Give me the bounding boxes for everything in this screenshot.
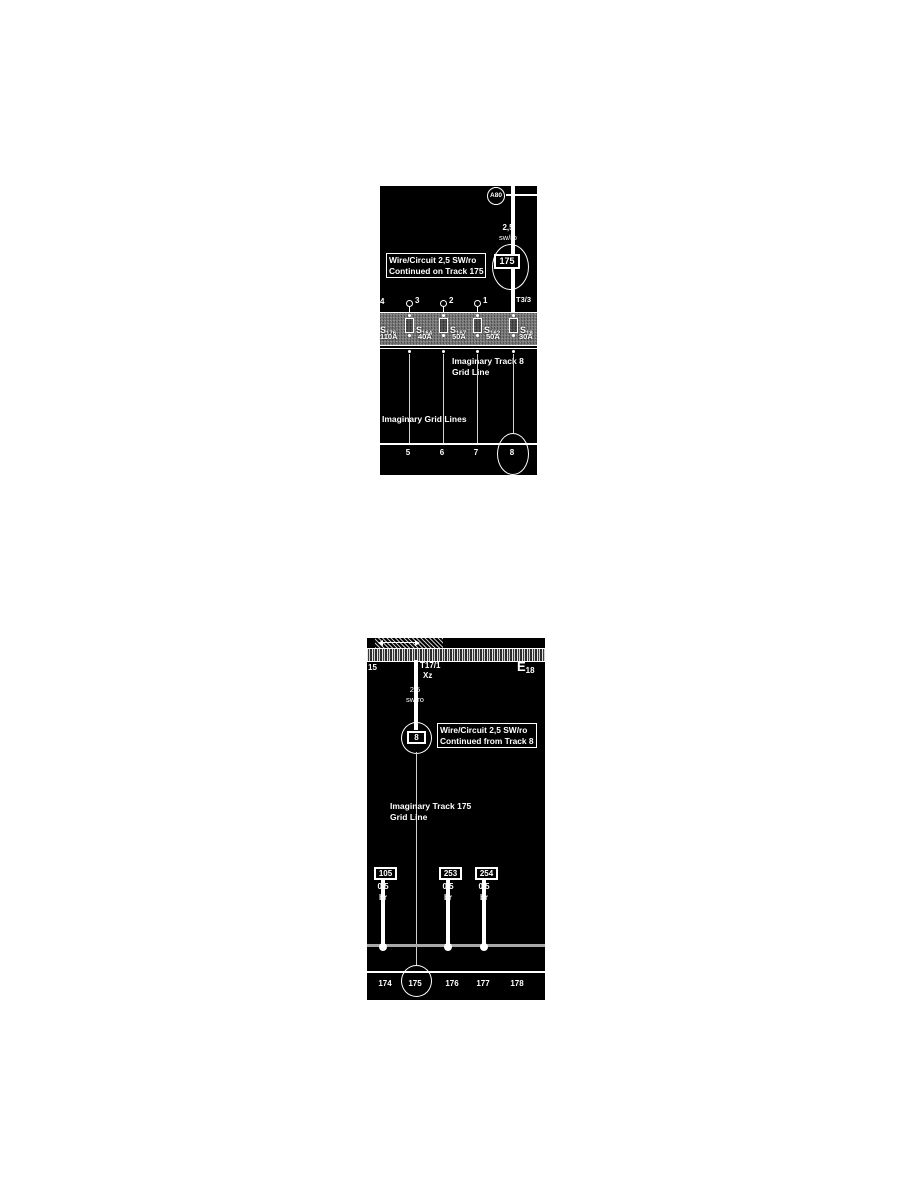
band-dot bbox=[512, 350, 515, 353]
wire-size-label: 2,5 bbox=[405, 685, 425, 694]
fuse-amp: 50A bbox=[452, 332, 466, 341]
feed-line bbox=[506, 194, 537, 196]
fuse-symbol bbox=[509, 318, 518, 333]
connector-label: T17/1 bbox=[420, 661, 440, 670]
fuse-amp: 40A bbox=[418, 332, 432, 341]
fuse-symbol bbox=[439, 318, 448, 333]
ground-dot bbox=[379, 943, 387, 951]
page: { "colors": { "page_bg": "#ffffff", "dia… bbox=[0, 0, 918, 1188]
fuse-amp: 110A bbox=[380, 332, 398, 341]
connector-sub-label: Xz bbox=[423, 671, 432, 680]
ground-dot bbox=[480, 943, 488, 951]
component-ref-sub: 18 bbox=[526, 666, 535, 675]
ground-wire bbox=[482, 878, 486, 947]
callout-line2: Continued on Track 175 bbox=[389, 266, 483, 277]
pin-label-2: 2 bbox=[449, 296, 453, 305]
component-circle: A80 bbox=[487, 187, 505, 205]
callout-line2: Continued from Track 8 bbox=[440, 736, 534, 747]
wire-number-box: 105 bbox=[374, 867, 397, 880]
track-number: 178 bbox=[505, 979, 529, 988]
band-dot bbox=[442, 350, 445, 353]
fuse-amp: 30A bbox=[519, 332, 533, 341]
track-axis-line bbox=[367, 971, 545, 973]
connector-label: T3/3 bbox=[516, 295, 531, 304]
grid-lines-note: Imaginary Grid Lines bbox=[382, 415, 467, 424]
track-number: 174 bbox=[373, 979, 397, 988]
wiring-legend-figure-track175: 15 E18 T17/1 Xz 2,5 sw/ro 8 Wire/Circuit… bbox=[367, 638, 545, 1000]
grid-line-track175 bbox=[416, 752, 417, 965]
track-number: 5 bbox=[398, 448, 418, 457]
fuse-dot bbox=[512, 334, 515, 337]
pin-label-4: 4 bbox=[380, 297, 384, 306]
fuse-amp: 50A bbox=[486, 332, 500, 341]
fuse-dot bbox=[512, 314, 515, 317]
pin-label-1: 1 bbox=[483, 296, 487, 305]
fuse-symbol bbox=[473, 318, 482, 333]
wiring-legend-figure-track8: A80 2,5 sw/ro 175 Wire/Circuit 2,5 SW/ro… bbox=[380, 186, 537, 475]
ground-bus-line bbox=[367, 944, 545, 947]
hatch-area bbox=[375, 638, 443, 648]
grid-line-track8 bbox=[513, 354, 514, 433]
fuse-symbol bbox=[405, 318, 414, 333]
track-number: 176 bbox=[440, 979, 464, 988]
component-ref-main: E bbox=[517, 659, 526, 674]
callout-box: Wire/Circuit 2,5 SW/ro Continued from Tr… bbox=[437, 723, 537, 748]
track175-note-line2: Grid Line bbox=[390, 812, 471, 823]
track-number: 7 bbox=[466, 448, 486, 457]
fuse-dot bbox=[442, 314, 445, 317]
arrow-left-icon bbox=[378, 640, 383, 646]
fuse-dot bbox=[476, 314, 479, 317]
track175-note: Imaginary Track 175 Grid Line bbox=[390, 801, 471, 823]
fuse-dot bbox=[408, 334, 411, 337]
fuse-dot bbox=[442, 334, 445, 337]
fuse-dot bbox=[476, 334, 479, 337]
wire-color-label: sw/ro bbox=[400, 695, 430, 704]
wire-number-box: 254 bbox=[475, 867, 498, 880]
wire-number-box: 253 bbox=[439, 867, 462, 880]
grid-line bbox=[409, 354, 410, 443]
pin-label-3: 3 bbox=[415, 296, 419, 305]
strip-left-label: 15 bbox=[368, 663, 377, 672]
band-dot bbox=[476, 350, 479, 353]
callout-line1: Wire/Circuit 2,5 SW/ro bbox=[440, 725, 534, 736]
callout-box: Wire/Circuit 2,5 SW/ro Continued on Trac… bbox=[386, 253, 486, 278]
track175-note-line1: Imaginary Track 175 bbox=[390, 801, 471, 812]
wire-color-label: sw/ro bbox=[488, 233, 528, 242]
fuse-dot bbox=[408, 314, 411, 317]
band-bottom-line bbox=[380, 345, 537, 346]
circled-track-ellipse bbox=[497, 433, 529, 475]
callout-line1: Wire/Circuit 2,5 SW/ro bbox=[389, 255, 483, 266]
ground-wire bbox=[381, 878, 385, 947]
arrow-right-icon bbox=[415, 640, 420, 646]
track-number: 6 bbox=[432, 448, 452, 457]
band-dot bbox=[408, 350, 411, 353]
ground-wire bbox=[446, 878, 450, 947]
track-number-box: 175 bbox=[494, 254, 520, 269]
component-ref-label: E18 bbox=[517, 659, 535, 674]
ground-dot bbox=[444, 943, 452, 951]
pointer-arrow-line bbox=[383, 642, 415, 643]
grid-line bbox=[477, 354, 478, 443]
band-bottom-line bbox=[380, 348, 537, 349]
component-ref-label: A80 bbox=[490, 192, 502, 199]
wire-size-label: 2,5 bbox=[493, 223, 523, 232]
grid-line bbox=[443, 354, 444, 443]
circled-track-ellipse bbox=[401, 965, 432, 997]
track-number-box: 8 bbox=[407, 731, 426, 744]
track-number: 177 bbox=[471, 979, 495, 988]
